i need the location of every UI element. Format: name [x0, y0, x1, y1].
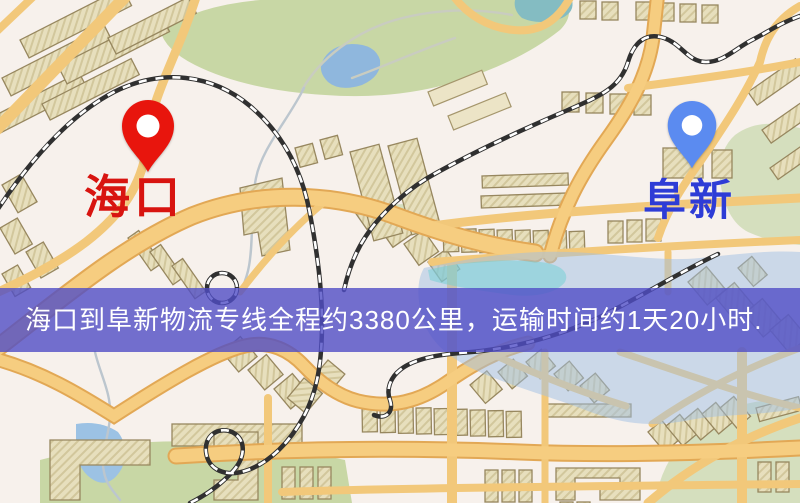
origin-pin-hole	[137, 115, 160, 138]
map-canvas	[0, 0, 800, 503]
route-info-text: 海口到阜新物流专线全程约3380公里，运输时间约1天20小时.	[25, 288, 800, 352]
destination-pin-icon[interactable]	[664, 101, 720, 172]
logistics-route-map: 海口 阜新 海口到阜新物流专线全程约3380公里，运输时间约1天20小时.	[0, 0, 800, 503]
destination-city-label: 阜新	[643, 180, 735, 223]
origin-pin-icon[interactable]	[118, 100, 178, 176]
origin-city-label: 海口	[84, 174, 184, 220]
destination-pin-hole	[682, 115, 703, 136]
route-info-banner: 海口到阜新物流专线全程约3380公里，运输时间约1天20小时.	[0, 288, 800, 352]
